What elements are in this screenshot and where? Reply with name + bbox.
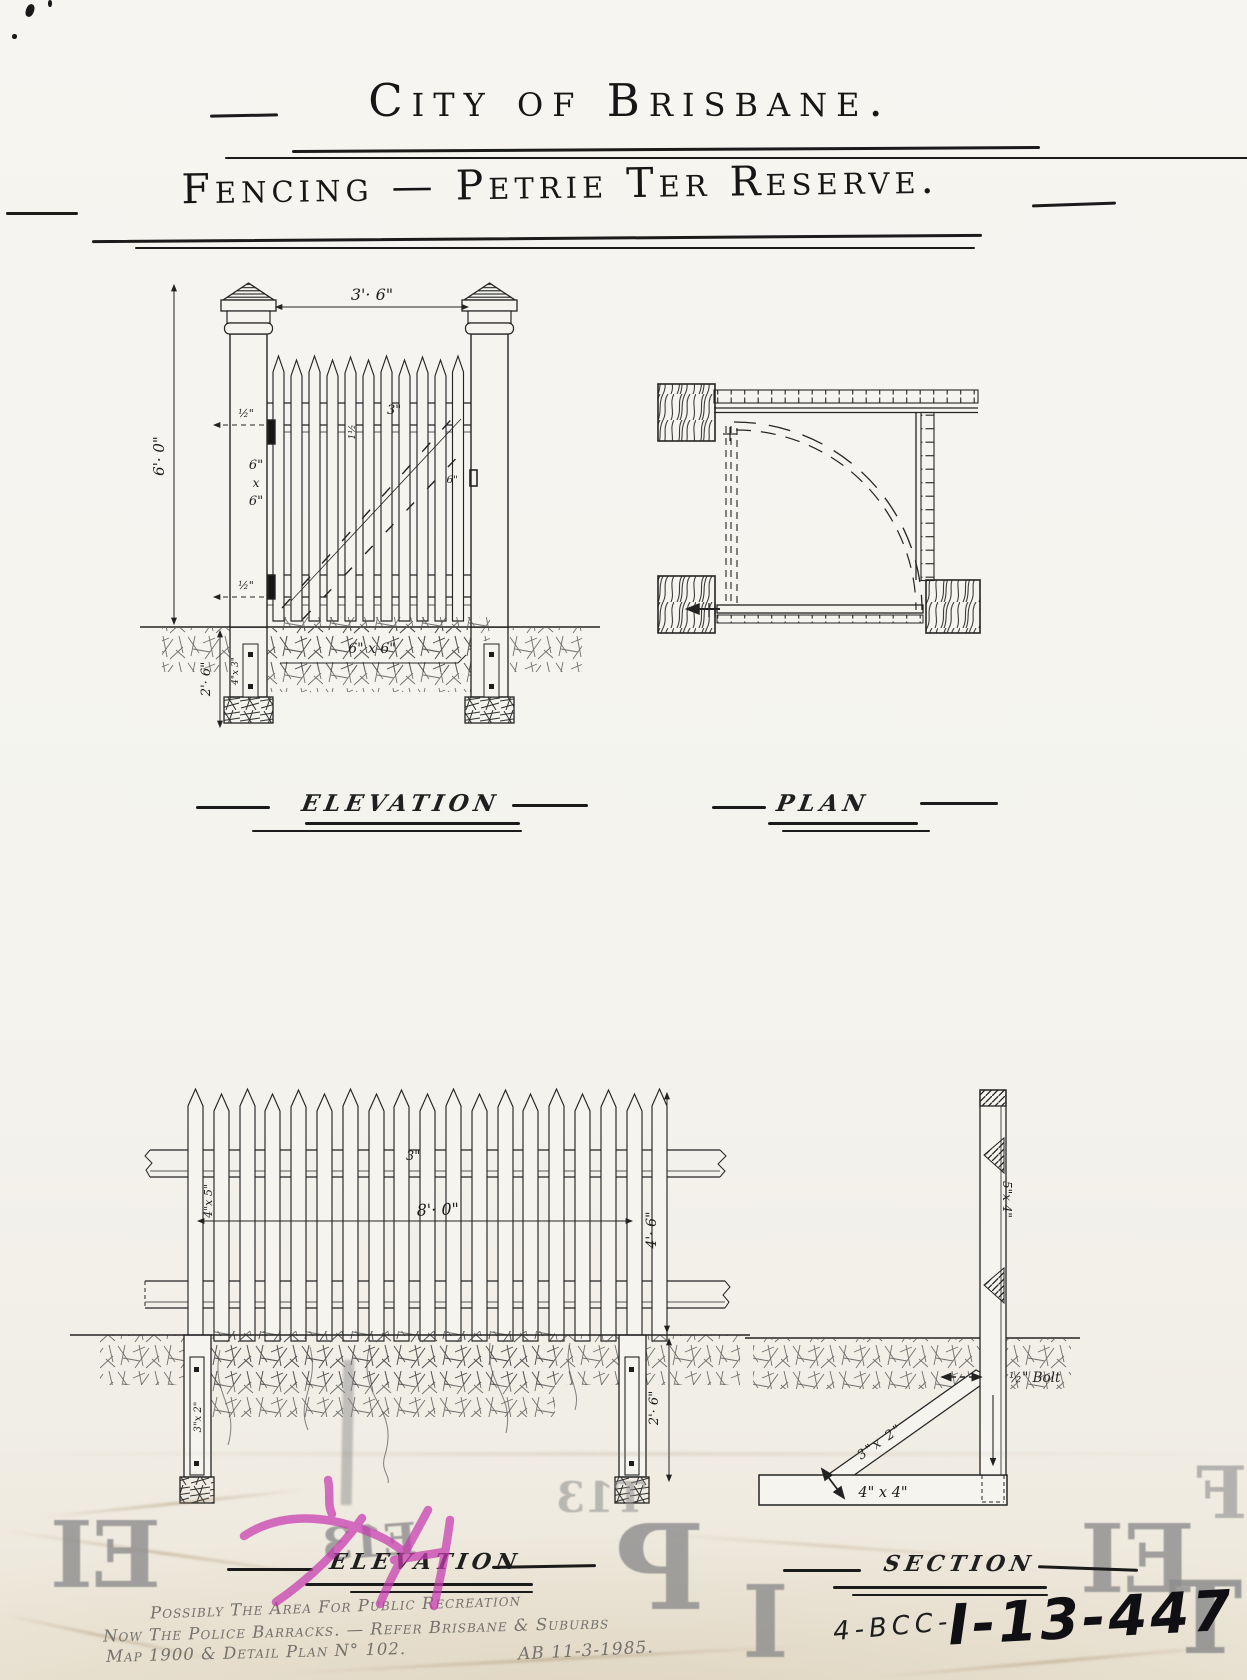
ink-speck <box>48 0 52 7</box>
plan-right-dash <box>920 802 998 805</box>
stamp-bleed-glyph: I <box>742 1580 789 1665</box>
gate-pickets <box>273 356 464 621</box>
gate-picket-width: 3" <box>387 403 401 418</box>
ink-speck <box>12 34 17 39</box>
gate-batten-dim: 4"x 3" <box>231 657 241 686</box>
gate-latch-dim: 6" <box>446 474 458 486</box>
scanned-drawing-page: City of Brisbane. Fencing — Petrie Ter R… <box>0 0 1247 1680</box>
elevation1-underline-a <box>305 822 520 825</box>
plan-gate <box>687 422 923 623</box>
plan-left-dash <box>712 806 766 809</box>
title2-right-dash <box>1032 202 1116 208</box>
title2-underline-b <box>135 247 975 249</box>
section-underline-a <box>833 1586 1047 1589</box>
fence-batten-size: 3"x 2" <box>193 1402 204 1433</box>
section-post-size: 5"x 4" <box>1000 1181 1014 1218</box>
gate-elevation-drawing: 3'· 6" 6'· 0" 6" x 6" ½" ½" 1½ 3" 6" 2'·… <box>140 270 600 790</box>
fence-height: 4'· 6" <box>644 1211 660 1249</box>
gate-post-w: 6" <box>249 458 263 473</box>
plan-swing-arc <box>734 422 922 610</box>
gate-plinth-dim: 6" x 6" <box>348 641 396 657</box>
gate-height-dim: 6'· 0" <box>150 436 168 476</box>
plan-label: PLAN <box>766 790 881 817</box>
elevation1-left-dash <box>196 806 270 809</box>
gate-grass-over <box>275 617 490 641</box>
section-bolt-label: ½" Bolt <box>1009 1370 1061 1386</box>
paper-crease <box>0 1452 1247 1456</box>
elevation1-underline-b <box>252 830 522 832</box>
plan-underline-a <box>768 822 918 825</box>
title1-left-dash <box>210 113 278 117</box>
hinge-bottom <box>268 575 275 599</box>
page-subtitle: Fencing — Petrie Ter Reserve. <box>85 153 1036 214</box>
title2-underline-a <box>92 234 982 243</box>
section-post-cap <box>980 1090 1006 1106</box>
stamp-bleed-glyph: P <box>616 1518 705 1618</box>
gate-elevation-label: ELEVATION <box>300 790 485 817</box>
hinge-top <box>268 420 275 444</box>
fence-rail-size: 4"x 5" <box>202 1184 215 1219</box>
fence-picket-width: 3" <box>406 1149 420 1164</box>
gate-rail-top-offset: ½" <box>238 407 254 420</box>
gate-post-x: x <box>253 476 260 490</box>
stamp-bleed-glyph: EI <box>52 1516 161 1594</box>
gate-depth-dim: 2'· 6" <box>199 662 214 697</box>
ink-speck <box>24 3 36 18</box>
stamp-bleed-glyph: F <box>1196 1462 1247 1523</box>
fence-depth: 2'· 6" <box>647 1391 662 1426</box>
plan-underline-b <box>782 830 930 832</box>
gate-width-dim: 3'· 6" <box>351 285 393 304</box>
gate-post-h: 6" <box>249 494 263 509</box>
elevation1-right-dash <box>512 804 588 807</box>
pink-marker-scribble <box>232 1468 492 1618</box>
gate-plan-drawing <box>630 368 980 638</box>
fence-panel-width: 8'· 0" <box>416 1199 459 1219</box>
section-left-dash <box>783 1569 861 1572</box>
section-label: SECTION <box>882 1551 1035 1577</box>
gate-picket-thickness: 1½ <box>347 424 358 439</box>
section-drawing: 5"x 4" 3"x 2" ½" Bolt 4" x 4" <box>745 1005 1080 1515</box>
page-title: City of Brisbane. <box>280 74 980 127</box>
gate-rail-bottom-offset: ½" <box>238 579 254 592</box>
title2-left-dash <box>6 212 78 215</box>
plan-fence <box>714 390 978 581</box>
title1-underline-a <box>292 146 1040 153</box>
